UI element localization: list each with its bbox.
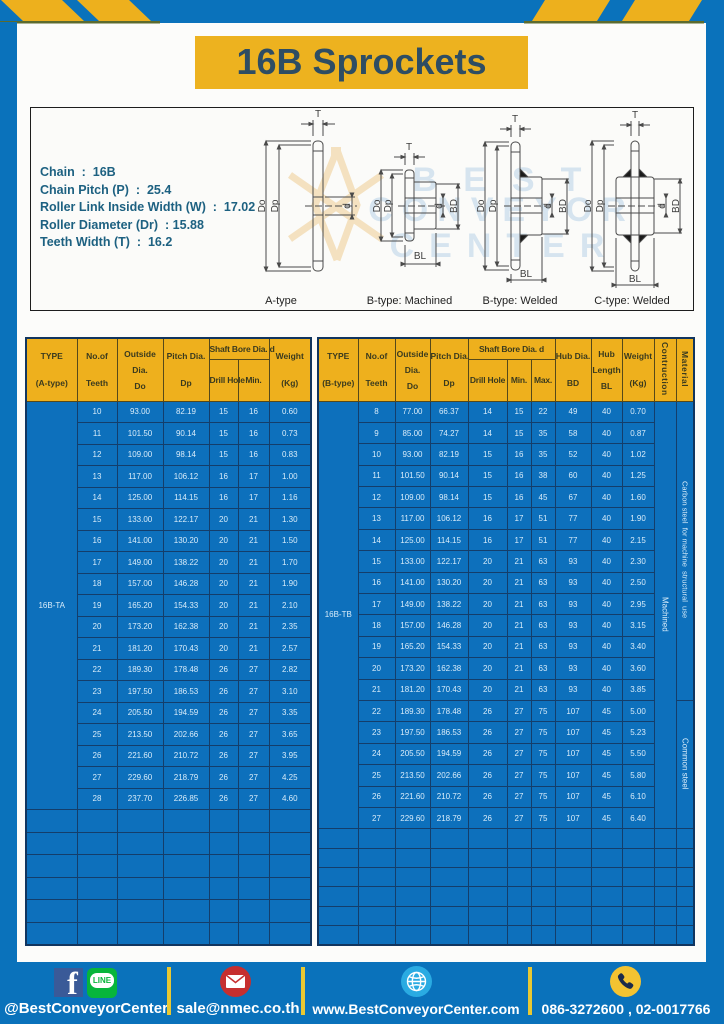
svg-text:T: T <box>632 110 638 121</box>
svg-text:T: T <box>315 109 321 120</box>
svg-text:BD: BD <box>449 199 460 213</box>
svg-text:d: d <box>543 203 554 209</box>
svg-text:Do: Do <box>372 199 383 212</box>
svg-text:BD: BD <box>558 199 569 213</box>
svg-text:T: T <box>406 142 412 153</box>
svg-text:BL: BL <box>629 274 642 285</box>
svg-text:Do: Do <box>583 199 594 212</box>
svg-text:Dp: Dp <box>488 199 499 212</box>
svg-text:BD: BD <box>671 199 682 213</box>
svg-text:Dp: Dp <box>595 199 606 212</box>
svg-text:Do: Do <box>476 199 487 212</box>
svg-text:Dp: Dp <box>270 199 281 212</box>
svg-text:BL: BL <box>414 251 427 262</box>
svg-text:d: d <box>657 203 668 209</box>
svg-text:Do: Do <box>257 199 268 212</box>
svg-text:d: d <box>434 203 445 209</box>
svg-text:Dp: Dp <box>383 199 394 212</box>
svg-text:BL: BL <box>520 269 533 280</box>
svg-text:T: T <box>512 114 518 125</box>
svg-text:d: d <box>342 203 353 209</box>
